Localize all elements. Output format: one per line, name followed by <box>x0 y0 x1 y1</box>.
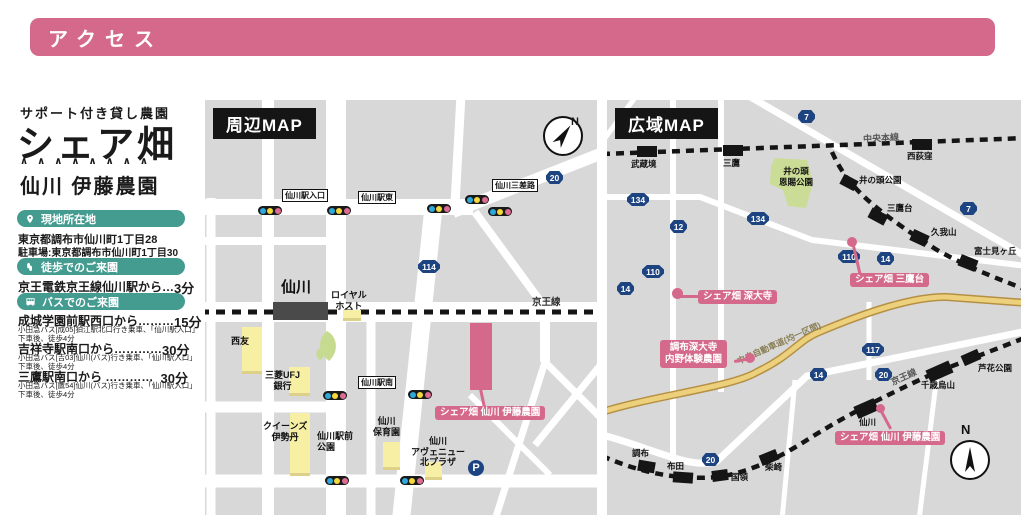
route-shield: 20 <box>546 171 563 184</box>
route-shield: 7 <box>798 110 815 123</box>
farm-label: シェア畑 仙川 伊藤農園 <box>435 406 545 420</box>
traffic-light-icon <box>488 207 512 216</box>
building-label: ロイヤル ホスト <box>331 290 367 311</box>
station-name: 千歳烏山 <box>921 381 955 390</box>
compass-north-label: N <box>961 425 970 434</box>
parking-address: 駐車場:東京都調布市仙川町1丁目30 <box>18 244 178 259</box>
route-shield: 12 <box>670 220 687 233</box>
location-badge: 現地所在地 <box>17 210 185 227</box>
building <box>383 442 400 470</box>
route-shield: 110 <box>642 265 664 278</box>
route-shield: 20 <box>702 453 719 466</box>
farm-plot-marker <box>470 323 492 390</box>
map-pin-icon <box>25 214 35 224</box>
route-shield: 7 <box>960 202 977 215</box>
station-name: 芦花公園 <box>978 364 1012 373</box>
station-marker <box>637 146 657 157</box>
traffic-light-icon <box>427 204 451 213</box>
route-shield: 14 <box>810 368 827 381</box>
station-name: 井の頭公園 <box>859 176 902 185</box>
rail-line-label: 中央本線 <box>863 130 900 145</box>
route-shield: 20 <box>875 368 892 381</box>
signal-label: 仙川駅南 <box>358 376 396 389</box>
farm-label: シェア畑 仙川 伊藤農園 <box>835 431 945 445</box>
building <box>242 327 262 374</box>
station-name: 布田 <box>667 462 684 471</box>
station-name: 仙川 <box>859 418 876 427</box>
station-name: 仙川 <box>281 283 311 294</box>
footsteps-icon <box>25 262 35 272</box>
station-name: 三鷹台 <box>887 204 913 213</box>
route-shield: 14 <box>877 252 894 265</box>
station-marker <box>723 145 743 156</box>
traffic-light-icon <box>408 390 432 399</box>
park-label: 井の頭 恩賜公園 <box>779 166 813 187</box>
signal-label: 仙川駅入口 <box>282 189 328 202</box>
station-name: 国領 <box>731 473 748 482</box>
traffic-light-icon <box>400 476 424 485</box>
building-label: 三菱UFJ 銀行 <box>265 370 300 391</box>
compass-north-label: N <box>571 116 579 128</box>
building-label: 仙川 保育園 <box>373 416 400 437</box>
location-badge-label: 現地所在地 <box>41 211 96 227</box>
walk-badge-label: 徒歩でのご来園 <box>41 259 118 275</box>
page-header: アクセス <box>30 18 995 56</box>
bus-route-note: 小田急バス[鷹54]仙川(バス)行き乗車、「仙川駅入口」 下車後、徒歩4分 <box>18 382 197 399</box>
station-marker <box>673 471 694 483</box>
traffic-light-icon <box>327 206 351 215</box>
station-name: 西荻窪 <box>907 152 933 161</box>
traffic-light-icon <box>325 476 349 485</box>
route-shield: 134 <box>747 212 769 225</box>
farm-dot-marker <box>745 353 755 363</box>
farm-label: 調布深大寺 内野体験農園 <box>660 340 727 368</box>
bus-icon <box>25 296 36 307</box>
farm-dot-marker <box>847 237 857 247</box>
bus-badge-label: バスでのご来園 <box>42 294 119 310</box>
park-label: 仙川駅前 公園 <box>317 431 353 452</box>
local-map-title: 周辺MAP <box>213 108 316 139</box>
station-name: 富士見ヶ丘 <box>974 247 1017 256</box>
traffic-light-icon <box>258 206 282 215</box>
compass-icon <box>950 440 990 480</box>
farm-dot-marker <box>876 404 885 413</box>
access-page: アクセス サポート付き貸し農園 シェア畑 ∧∧∧∧∧∧∧∧ 仙川 伊藤農園 現地… <box>0 0 1024 527</box>
route-shield: 134 <box>627 193 649 206</box>
traffic-light-icon <box>323 391 347 400</box>
local-area-map: 周辺MAP N 仙川駅入口 仙川駅東 仙川三差路 仙川駅南 20 114 京王線… <box>205 100 597 515</box>
rail-line-label: 京王線 <box>532 294 561 308</box>
signal-label: 仙川三差路 <box>492 179 538 192</box>
compass-icon: N <box>543 116 583 156</box>
farm-dot-marker <box>672 288 683 299</box>
farm-label-pointer <box>680 295 700 298</box>
farm-label: シェア畑 深大寺 <box>698 290 777 304</box>
station-marker <box>912 139 932 150</box>
station-name: 三鷹 <box>723 159 740 168</box>
route-shield: 14 <box>617 282 634 295</box>
route-shield: 117 <box>862 343 884 356</box>
walk-badge: 徒歩でのご来園 <box>17 258 185 275</box>
wide-map-title: 広域MAP <box>615 108 718 139</box>
station-name: 武蔵境 <box>631 160 657 169</box>
parking-icon: P <box>468 460 484 476</box>
station-marker <box>273 302 328 320</box>
building-label: 仙川 アヴェニュー 北プラザ <box>411 436 465 468</box>
station-name: 久我山 <box>931 228 957 237</box>
route-shield: 114 <box>418 260 440 273</box>
farm-name: 仙川 伊藤農園 <box>20 170 160 199</box>
building-label: クイーンズ 伊勢丹 <box>263 421 307 442</box>
building <box>343 310 361 321</box>
farm-label: シェア畑 三鷹台 <box>850 273 929 287</box>
wide-area-map: 広域MAP 中央本線 京王線 中央自動車道(均一区間) 井の頭 恩賜公園 武蔵境… <box>607 100 1021 515</box>
logo-carets-decoration: ∧∧∧∧∧∧∧∧ <box>20 156 157 167</box>
traffic-light-icon <box>465 195 489 204</box>
signal-label: 仙川駅東 <box>358 191 396 204</box>
station-marker <box>711 469 728 482</box>
bus-badge: バスでのご来園 <box>17 293 185 310</box>
building-label: 西友 <box>231 336 249 347</box>
page-title: アクセス <box>30 23 163 52</box>
station-name: 柴崎 <box>765 463 782 472</box>
station-name: 調布 <box>632 449 649 458</box>
